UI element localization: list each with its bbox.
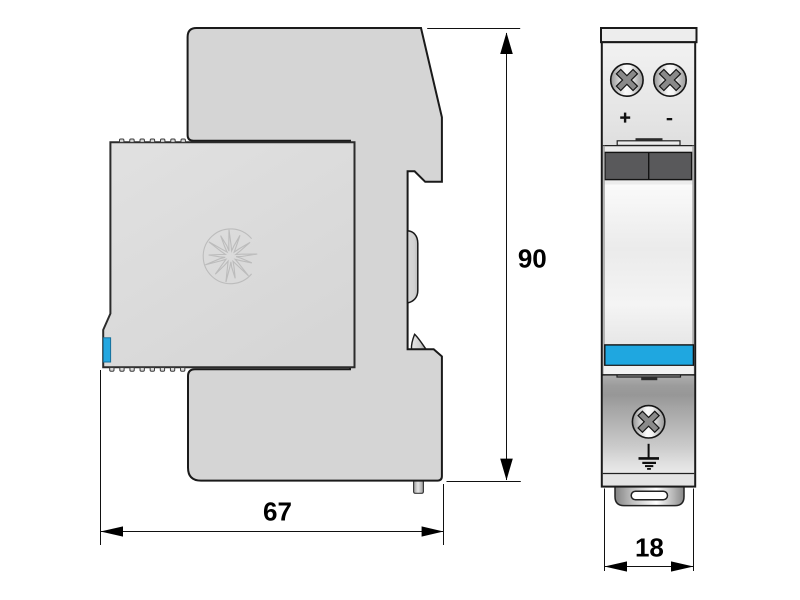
- svg-text:18: 18: [635, 533, 664, 563]
- svg-text:67: 67: [263, 497, 292, 527]
- svg-text:90: 90: [518, 244, 547, 274]
